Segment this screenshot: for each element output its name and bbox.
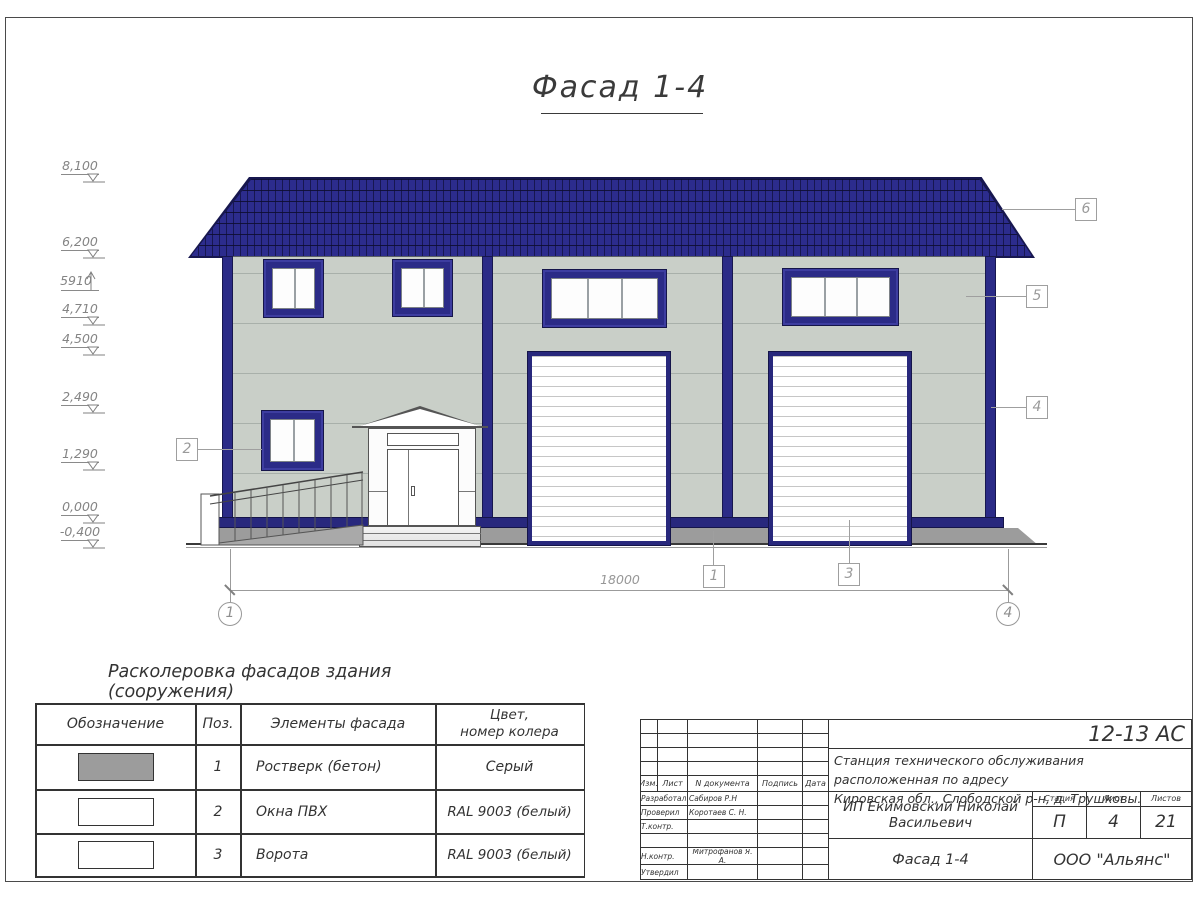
- callout-leader-1: [713, 531, 714, 565]
- legend-color: RAL 9003 (белый): [436, 834, 583, 876]
- legend-element: Ворота: [241, 834, 450, 876]
- legend-pos: 1: [196, 745, 240, 789]
- tb-stage-label: Стадия: [1033, 792, 1086, 805]
- tb-sheet-value: 4: [1087, 807, 1140, 837]
- dimension-value: 18000: [570, 572, 670, 587]
- dim-5910-arrow: [87, 272, 95, 290]
- tb-name-4: Митрофанов Я. А.: [689, 849, 756, 863]
- legend-header-color-line2: номер колера: [460, 724, 559, 741]
- callout-6: 6: [1075, 198, 1097, 221]
- legend-element: Окна ПВХ: [241, 790, 450, 833]
- callout-4: 4: [1026, 396, 1048, 419]
- tb-stage-value: П: [1033, 807, 1086, 837]
- tb-doc-number: 12-13 АС: [830, 720, 1185, 747]
- tb-role-4: Н.контр.: [641, 849, 686, 863]
- extension-line-right: [1008, 549, 1009, 602]
- tb-role-2: Т.контр.: [641, 820, 686, 833]
- tb-podpis: Подпись: [758, 776, 802, 791]
- callout-1: 1: [703, 565, 725, 588]
- legend-swatch-cell: [36, 834, 195, 876]
- tb-role-5: Утвердил: [641, 866, 686, 879]
- tb-organization: ООО "Альянс": [1033, 840, 1191, 879]
- callout-leader-3: [849, 520, 850, 563]
- tb-line: [757, 719, 758, 880]
- tb-line: [640, 733, 828, 734]
- tb-line: [640, 747, 828, 748]
- legend-pos: 3: [196, 834, 240, 876]
- tb-line: [687, 719, 688, 880]
- axis-bubble-1: 1: [218, 602, 242, 626]
- tb-name-2: [689, 820, 756, 833]
- tb-izm: Изм.: [640, 776, 657, 791]
- tb-line: [828, 748, 1192, 749]
- ramp-end-post: [201, 494, 219, 545]
- legend-header-color: Цвет, номер колера: [436, 704, 583, 744]
- legend-title: Расколеровка фасадов здания (сооружения): [108, 662, 468, 702]
- legend-header-element: Элементы фасада: [241, 704, 435, 744]
- elevation-flags: [83, 174, 105, 548]
- legend-header-color-line1: Цвет,: [490, 707, 529, 724]
- tb-name-5: [689, 866, 756, 879]
- legend-line: [584, 703, 586, 877]
- legend-color: RAL 9003 (белый): [436, 790, 583, 833]
- swatch-vorota: [78, 841, 154, 869]
- tb-line: [802, 719, 803, 880]
- extension-line-left: [230, 549, 231, 602]
- tb-role-3: [641, 834, 686, 847]
- callout-leader-5: [966, 296, 1026, 297]
- legend-line: [35, 876, 585, 878]
- axis-bubble-4: 4: [996, 602, 1020, 626]
- legend-color: Серый: [436, 745, 583, 789]
- legend-swatch-cell: [36, 790, 195, 833]
- swatch-okna: [78, 798, 154, 826]
- tb-ndoc: N документа: [688, 776, 757, 791]
- tb-role-1: Проверил: [641, 806, 686, 819]
- tb-sheet-label: Лист: [1087, 792, 1140, 805]
- callout-3: 3: [838, 563, 860, 586]
- tb-list: Лист: [658, 776, 687, 791]
- legend-element: Ростверк (бетон): [241, 745, 450, 789]
- legend-pos: 2: [196, 790, 240, 833]
- tb-client: ИП Екимовский Николай Васильевич: [829, 792, 1032, 837]
- legend-header-designation: Обозначение: [36, 704, 195, 744]
- tb-line: [640, 761, 828, 762]
- swatch-rostverk: [78, 753, 154, 781]
- legend-swatch-cell: [36, 745, 195, 789]
- tb-name-0: Сабиров Р.Н: [689, 792, 756, 805]
- drawing-sheet: Фасад 1-4 8,100 6,200 5910 4,710 4,500 2…: [0, 0, 1200, 900]
- legend-header-pos: Поз.: [196, 704, 240, 744]
- tb-sheets-value: 21: [1141, 807, 1191, 837]
- callout-2: 2: [176, 438, 198, 461]
- tb-line: [640, 847, 828, 848]
- tb-line: [640, 864, 828, 865]
- tb-name-3: [689, 834, 756, 847]
- tb-data: Дата: [803, 776, 828, 791]
- callout-5: 5: [1026, 285, 1048, 308]
- tb-sheets-label: Листов: [1141, 792, 1191, 805]
- callout-leader-4: [991, 407, 1026, 408]
- dimension-line: [230, 590, 1009, 591]
- tb-role-0: Разработал: [641, 792, 686, 805]
- tb-name-1: Коротаев С. Н.: [689, 806, 756, 819]
- callout-leader-2: [198, 449, 262, 450]
- callout-leader-6: [1002, 209, 1075, 210]
- tb-project-line1: Станция технического обслуживания распол…: [834, 751, 1190, 789]
- tb-drawing-title: Фасад 1-4: [829, 840, 1032, 879]
